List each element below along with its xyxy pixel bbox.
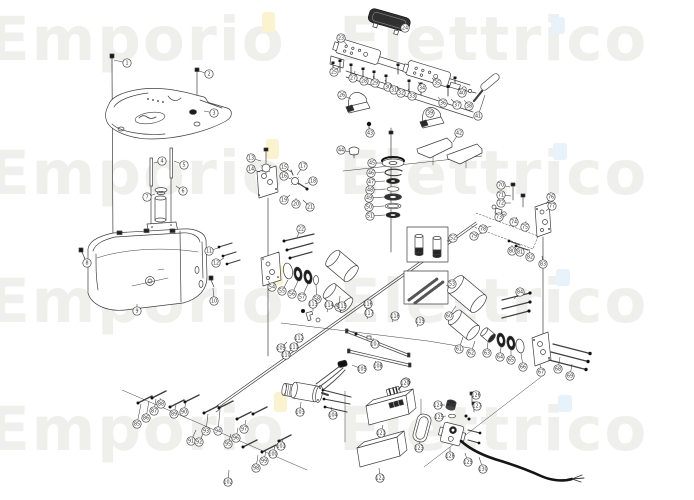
svg-text:57: 57: [299, 295, 305, 301]
svg-text:78: 78: [480, 227, 486, 233]
svg-text:18: 18: [310, 179, 316, 185]
stack-screw: [389, 131, 393, 134]
svg-text:112: 112: [294, 336, 303, 342]
svg-text:8: 8: [85, 261, 88, 267]
svg-text:102: 102: [223, 480, 232, 486]
svg-text:124: 124: [433, 403, 442, 409]
svg-text:74: 74: [511, 220, 517, 226]
lever-left: [346, 92, 370, 113]
part-callout-38: 38: [464, 100, 473, 110]
svg-text:89: 89: [171, 412, 177, 418]
svg-text:49: 49: [366, 196, 372, 202]
part-callout-43: 43: [366, 127, 374, 137]
watermark-text: Emporio Elettrico: [0, 4, 648, 75]
svg-text:86: 86: [143, 416, 149, 422]
svg-text:47: 47: [368, 180, 374, 186]
svg-text:35: 35: [434, 81, 440, 87]
svg-text:19: 19: [281, 198, 287, 204]
svg-text:45: 45: [369, 161, 375, 167]
svg-text:12: 12: [213, 261, 219, 267]
svg-text:129: 129: [463, 460, 472, 466]
svg-text:7: 7: [145, 195, 148, 201]
svg-text:109: 109: [276, 346, 285, 352]
svg-text:123: 123: [414, 446, 423, 452]
svg-text:119: 119: [415, 319, 424, 325]
svg-text:94: 94: [215, 429, 221, 435]
svg-text:11: 11: [206, 249, 212, 255]
svg-text:41: 41: [475, 114, 481, 120]
svg-text:26: 26: [339, 93, 345, 99]
svg-text:31: 31: [391, 88, 397, 94]
part-callout-11: 11: [205, 247, 218, 255]
svg-text:110: 110: [281, 353, 290, 359]
part-callout-120: 120: [398, 379, 410, 390]
pump-washer: [449, 414, 456, 418]
part-callout-65: 65: [507, 349, 515, 364]
svg-text:79: 79: [471, 234, 477, 240]
svg-text:44: 44: [338, 148, 344, 154]
svg-text:68: 68: [555, 367, 561, 373]
svg-text:27: 27: [350, 76, 356, 82]
part-callout-37: 37: [451, 99, 461, 109]
svg-text:96: 96: [233, 436, 239, 442]
part-callout-34: 34: [418, 82, 426, 92]
i-dot-blue: [556, 269, 570, 286]
svg-text:108: 108: [373, 364, 382, 370]
svg-text:65: 65: [508, 358, 514, 364]
part-callout-22: 22: [297, 225, 305, 237]
part-callout-61: 61: [455, 337, 463, 353]
exploded-parts-diagram: Emporio ElettricoEmporio ElettricoEmpori…: [0, 0, 694, 500]
svg-text:15: 15: [281, 165, 287, 171]
svg-text:29: 29: [372, 81, 378, 87]
svg-text:117: 117: [364, 311, 373, 317]
svg-text:69: 69: [567, 374, 573, 380]
svg-text:5: 5: [182, 163, 185, 169]
svg-text:71: 71: [498, 193, 504, 199]
part-callout-79: 79: [470, 232, 482, 240]
svg-text:52: 52: [450, 236, 456, 242]
part-callout-122: 122: [375, 468, 384, 482]
svg-text:125: 125: [434, 415, 443, 421]
part-callout-68: 68: [554, 357, 562, 373]
svg-text:17: 17: [300, 164, 306, 170]
oil-tank: [88, 229, 207, 310]
piston-box: [407, 227, 448, 262]
svg-text:93: 93: [203, 429, 209, 435]
part-callout-32: 32: [397, 86, 405, 97]
part-callout-29: 29: [371, 76, 379, 87]
svg-text:116: 116: [363, 302, 372, 308]
svg-text:20: 20: [293, 202, 299, 208]
svg-text:91: 91: [188, 439, 194, 445]
svg-text:99: 99: [261, 459, 267, 465]
svg-text:87: 87: [151, 409, 157, 415]
svg-text:60: 60: [446, 314, 452, 320]
svg-text:54: 54: [269, 285, 275, 291]
svg-text:130: 130: [478, 467, 487, 473]
svg-text:75: 75: [522, 225, 528, 231]
svg-text:16: 16: [281, 174, 287, 180]
part-callout-63: 63: [483, 342, 491, 357]
svg-text:95: 95: [225, 442, 231, 448]
svg-text:24: 24: [402, 26, 408, 32]
diagram-canvas: Emporio ElettricoEmporio ElettricoEmpori…: [0, 0, 694, 500]
svg-text:46: 46: [368, 171, 374, 177]
svg-text:107: 107: [370, 342, 379, 348]
svg-text:34: 34: [419, 86, 425, 92]
part-callout-74: 74: [510, 217, 518, 226]
handle-grip: [474, 72, 501, 101]
svg-text:128: 128: [445, 454, 454, 460]
svg-text:85: 85: [134, 422, 140, 428]
svg-text:90: 90: [181, 410, 187, 416]
part-callout-26: 26: [338, 91, 351, 99]
svg-text:32: 32: [398, 91, 404, 97]
svg-text:22: 22: [298, 227, 304, 233]
part-callout-36: 36: [438, 97, 447, 107]
svg-text:114: 114: [324, 303, 333, 309]
part-callout-33: 33: [408, 89, 416, 100]
svg-text:113: 113: [308, 302, 317, 308]
spring-box: [404, 271, 448, 304]
svg-text:80: 80: [509, 249, 515, 255]
pump-cap: [445, 399, 456, 411]
svg-text:38: 38: [466, 104, 472, 110]
svg-text:81: 81: [517, 250, 523, 256]
part-callout-111: 111: [289, 341, 299, 351]
svg-text:121: 121: [376, 431, 385, 437]
svg-text:101: 101: [276, 444, 285, 450]
watermark-text: Emporio Elettrico: [0, 394, 648, 465]
svg-text:67: 67: [538, 370, 544, 376]
svg-text:100: 100: [268, 452, 277, 458]
tank-side-screws: [218, 243, 240, 265]
svg-text:64: 64: [497, 355, 503, 361]
svg-text:83: 83: [540, 262, 546, 268]
svg-text:66: 66: [520, 365, 526, 371]
svg-text:88: 88: [158, 402, 164, 408]
svg-text:28: 28: [361, 79, 367, 85]
svg-text:127: 127: [472, 404, 481, 410]
svg-text:55: 55: [279, 289, 285, 295]
part-callout-82: 82: [526, 249, 534, 261]
svg-text:10: 10: [211, 299, 217, 305]
svg-text:25: 25: [331, 70, 337, 76]
part-callout-52: 52: [447, 234, 457, 242]
svg-text:72: 72: [498, 201, 504, 207]
svg-text:6: 6: [181, 189, 184, 195]
svg-text:37: 37: [454, 103, 460, 109]
svg-text:63: 63: [484, 351, 490, 357]
part-callout-105: 105: [352, 365, 367, 373]
ring-b: [506, 335, 516, 350]
svg-text:76: 76: [548, 195, 554, 201]
svg-text:70: 70: [498, 183, 504, 189]
svg-text:111: 111: [289, 345, 298, 351]
svg-text:104: 104: [328, 413, 337, 419]
valve-block-right-lower: [532, 332, 551, 366]
pump-block-center: [261, 252, 281, 286]
svg-text:105: 105: [357, 367, 366, 373]
part-callout-64: 64: [496, 347, 504, 361]
svg-text:53: 53: [449, 282, 455, 288]
svg-text:122: 122: [375, 476, 384, 482]
svg-text:4: 4: [160, 159, 163, 165]
svg-text:92: 92: [196, 440, 202, 446]
svg-text:13: 13: [248, 156, 254, 162]
svg-text:62: 62: [468, 351, 474, 357]
svg-text:126: 126: [471, 393, 480, 399]
i-dot-yellow: [262, 12, 275, 32]
part-callout-78: 78: [479, 225, 491, 233]
svg-text:48: 48: [367, 188, 373, 194]
svg-text:21: 21: [307, 205, 313, 211]
wire-bundle: [316, 366, 345, 390]
svg-text:3: 3: [212, 111, 215, 117]
spacer-ring: [314, 276, 319, 285]
svg-text:84: 84: [517, 290, 523, 296]
svg-text:36: 36: [440, 101, 446, 107]
svg-text:51: 51: [367, 214, 373, 220]
svg-text:120: 120: [400, 381, 409, 387]
part-callout-108: 108: [373, 361, 382, 370]
svg-text:33: 33: [409, 94, 415, 100]
svg-text:98: 98: [253, 466, 259, 472]
svg-text:82: 82: [527, 255, 533, 261]
svg-text:61: 61: [456, 347, 462, 353]
part-callout-66: 66: [519, 353, 527, 371]
svg-text:40: 40: [459, 91, 465, 97]
part-callout-127: 127: [472, 402, 481, 410]
svg-text:97: 97: [241, 427, 247, 433]
svg-text:77: 77: [549, 204, 555, 210]
svg-text:42: 42: [456, 131, 462, 137]
i-dot-blue: [553, 143, 567, 160]
svg-text:39: 39: [427, 111, 433, 117]
part-callout-102: 102: [223, 470, 232, 486]
svg-text:1: 1: [125, 61, 128, 67]
part-callout-126: 126: [471, 391, 480, 399]
svg-text:2: 2: [207, 72, 210, 78]
watermark-group: Emporio ElettricoEmporio ElettricoEmpori…: [0, 4, 648, 465]
part-callout-62: 62: [467, 341, 475, 357]
svg-text:9: 9: [135, 309, 138, 315]
i-dot-blue: [551, 17, 565, 34]
i-dot-blue: [558, 395, 572, 412]
svg-text:43: 43: [367, 131, 373, 137]
svg-text:56: 56: [289, 292, 295, 298]
upper-screw-cluster: [283, 234, 315, 260]
svg-text:14: 14: [248, 167, 254, 173]
ring-c: [515, 338, 525, 353]
svg-text:23: 23: [338, 36, 344, 42]
svg-text:50: 50: [366, 205, 372, 211]
part-callout-75: 75: [521, 221, 529, 231]
svg-text:115: 115: [337, 304, 346, 310]
part-callout-67: 67: [537, 364, 545, 376]
part-callout-51: 51: [366, 212, 385, 220]
svg-text:73: 73: [496, 215, 502, 221]
svg-text:103: 103: [295, 410, 304, 416]
svg-text:118: 118: [390, 314, 399, 320]
part-callout-39: 39: [426, 109, 434, 118]
